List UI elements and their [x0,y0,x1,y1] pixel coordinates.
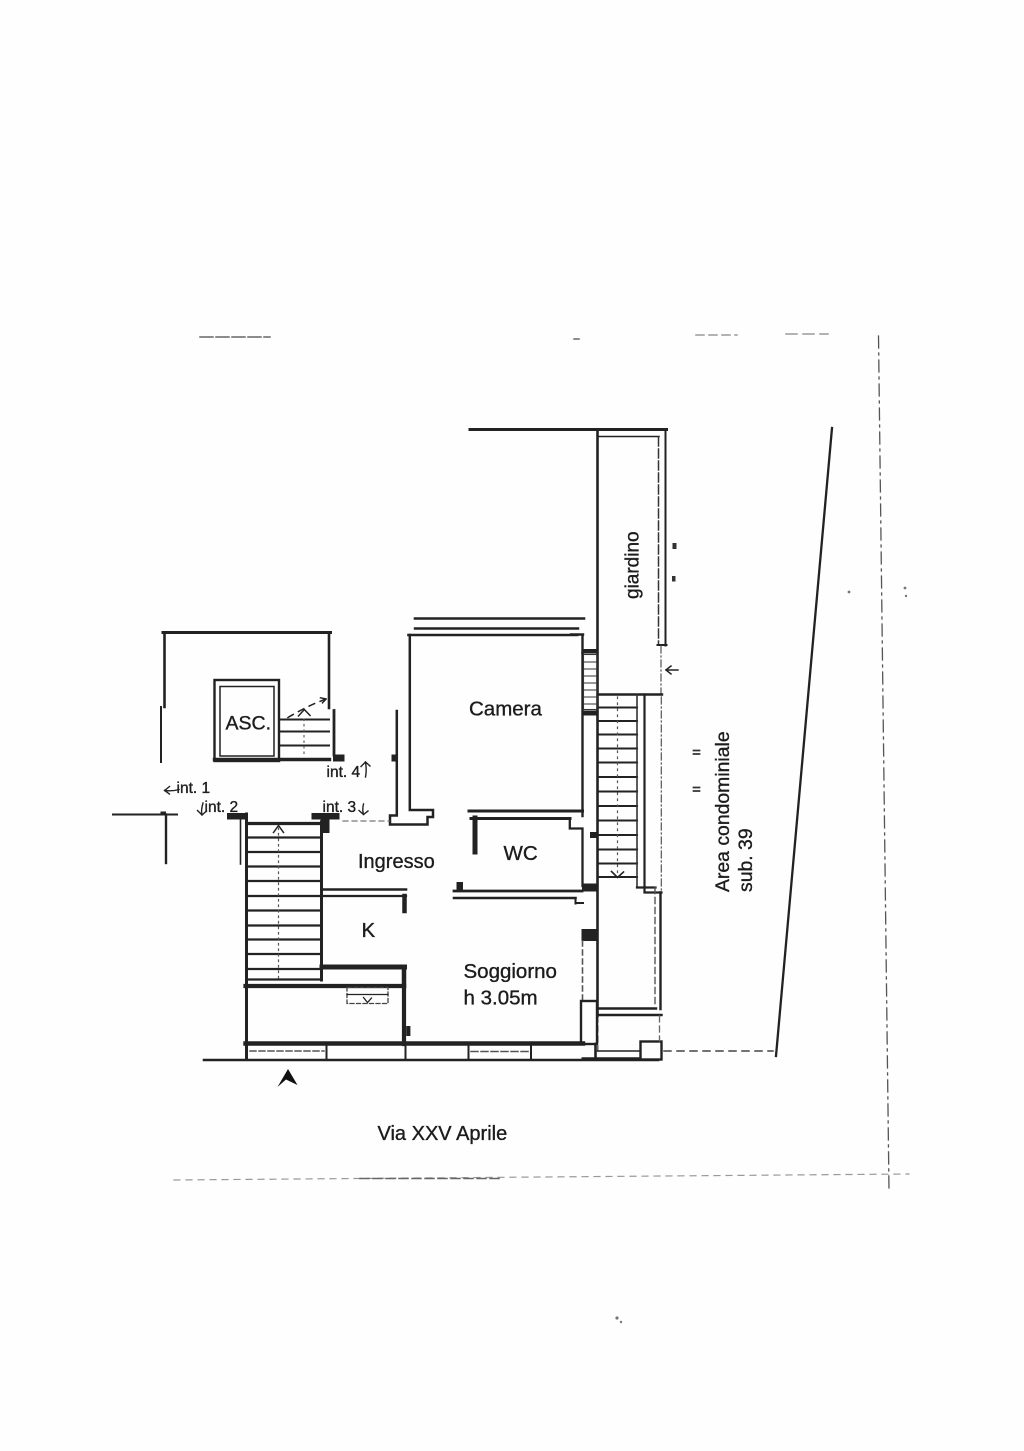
svg-text:K: K [362,919,376,942]
svg-text:giardino: giardino [623,531,644,599]
svg-text:WC: WC [504,842,538,865]
svg-text:Via XXV Aprile: Via XXV Aprile [378,1123,508,1145]
svg-text:Soggiorno: Soggiorno [464,960,557,983]
svg-text:int. 1: int. 1 [177,780,211,797]
svg-text:h 3.05m: h 3.05m [464,987,538,1010]
svg-text:Area condominiale: Area condominiale [712,731,734,892]
svg-text:int. 3: int. 3 [323,799,357,816]
svg-text:Camera: Camera [469,698,543,721]
svg-text:int. 2: int. 2 [205,799,239,816]
svg-text:Ingresso: Ingresso [358,851,435,873]
svg-text:int. 4: int. 4 [327,764,361,781]
svg-text:sub. 39: sub. 39 [735,828,757,892]
svg-text:ASC.: ASC. [226,713,272,735]
